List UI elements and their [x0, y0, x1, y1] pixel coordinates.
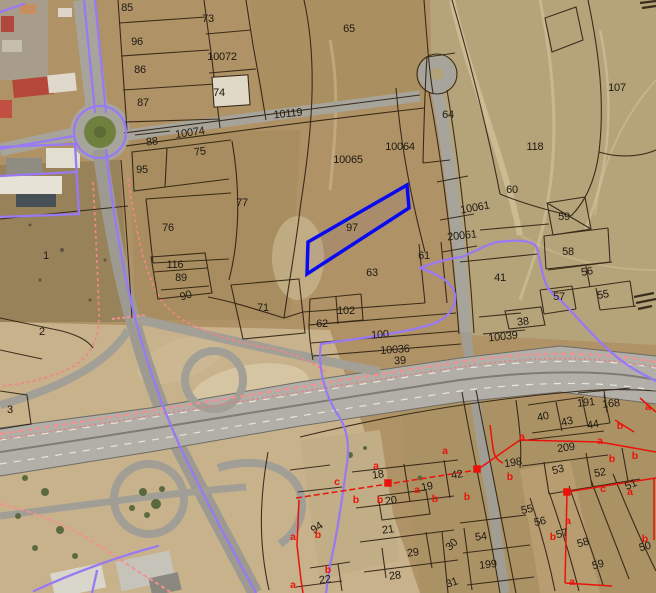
red-zone-lines	[296, 398, 656, 593]
overlay-lines	[0, 0, 656, 593]
cadastral-map[interactable]: 8573961007265867487101196410711888100747…	[0, 0, 656, 593]
selected-parcel-outline[interactable]	[307, 185, 409, 274]
